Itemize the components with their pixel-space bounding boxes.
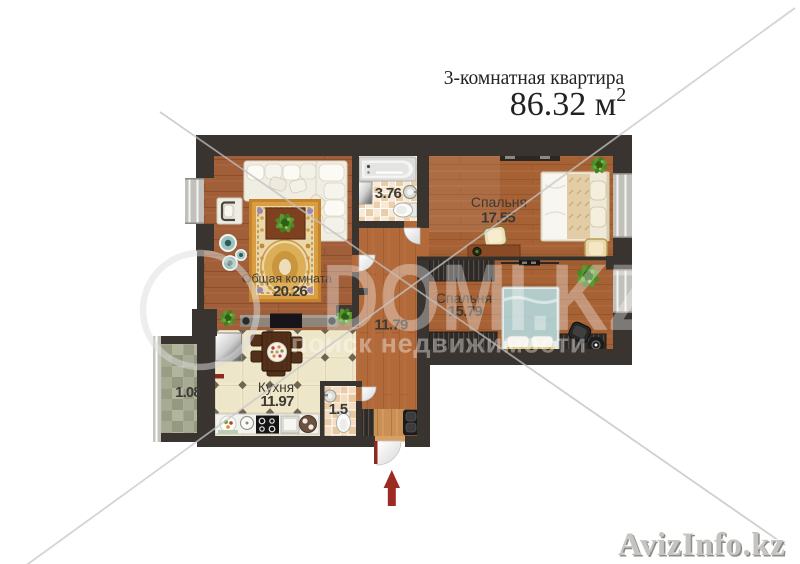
svg-text:86.32 м2: 86.32 м2 — [510, 84, 627, 123]
svg-text:1.5: 1.5 — [329, 401, 348, 418]
svg-text:AvizInfo.kz: AvizInfo.kz — [618, 527, 785, 563]
svg-text:3.76: 3.76 — [375, 185, 402, 202]
svg-text:11.97: 11.97 — [260, 393, 294, 410]
svg-text:1.08: 1.08 — [175, 385, 201, 401]
svg-text:20.26: 20.26 — [273, 283, 307, 300]
svg-text:поиск недвижимости: поиск недвижимости — [291, 329, 587, 359]
